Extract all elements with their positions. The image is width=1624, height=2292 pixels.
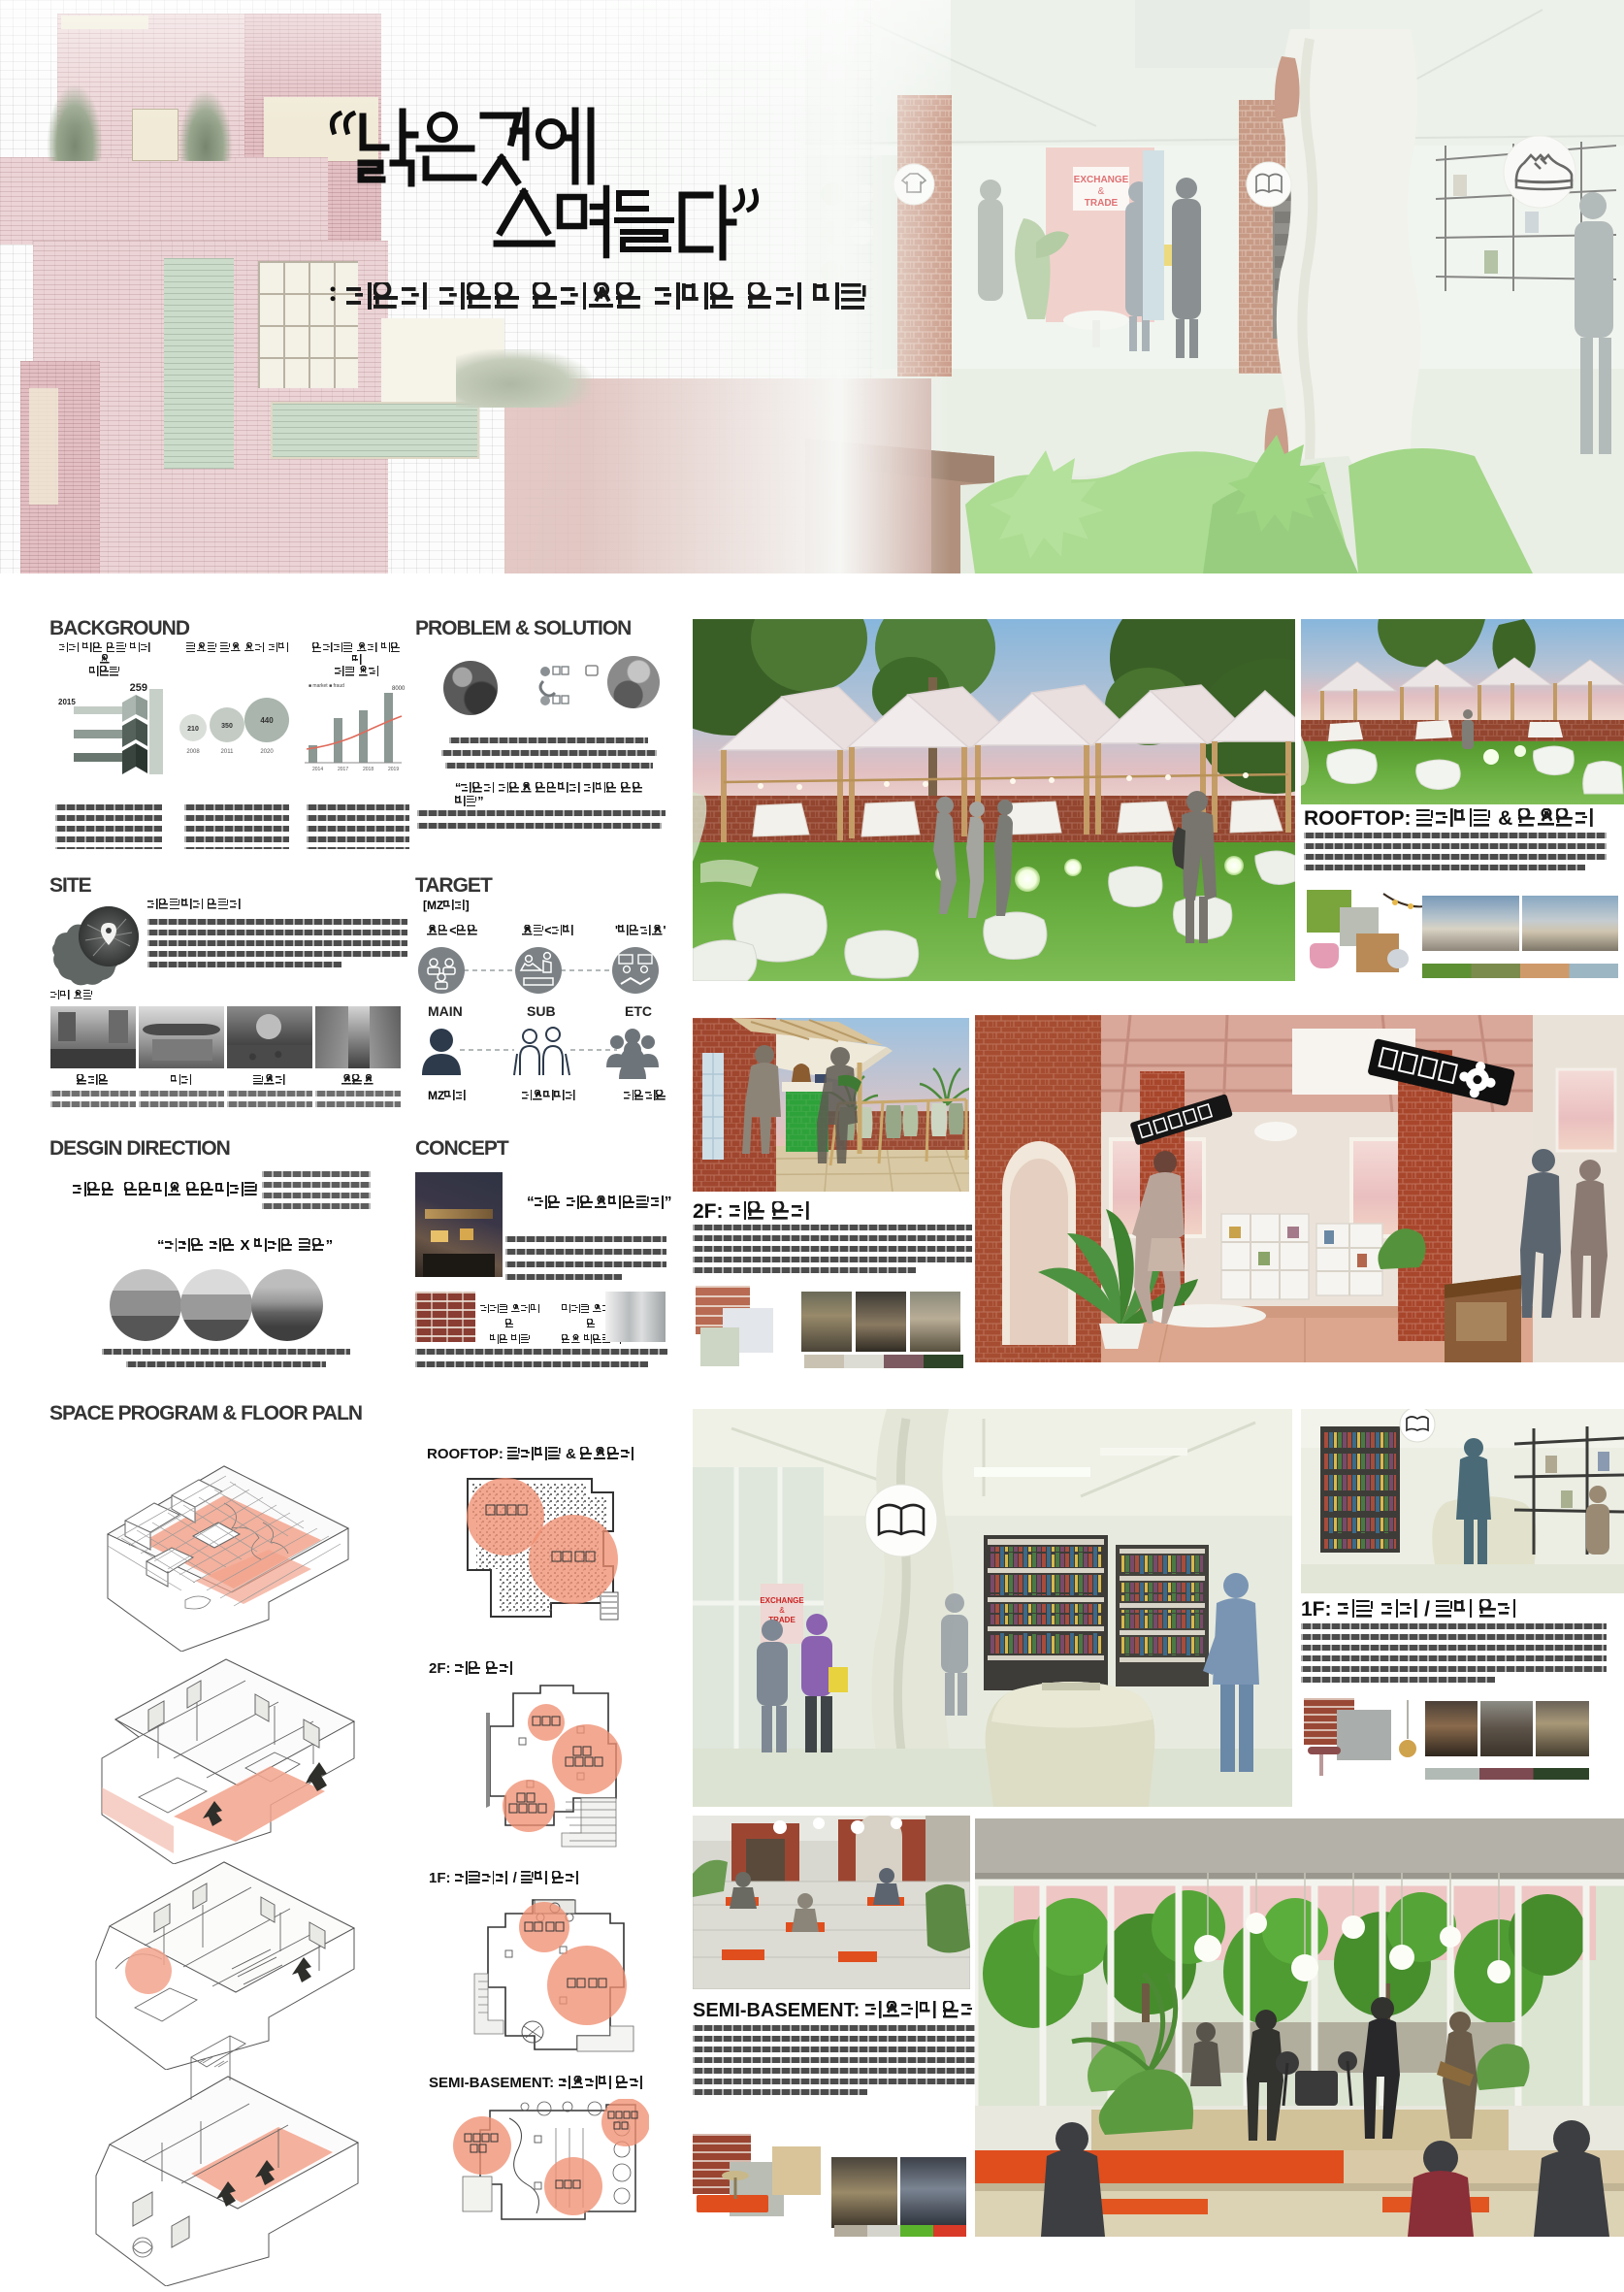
svg-text:EXCHANGE: EXCHANGE — [760, 1596, 804, 1605]
svg-text:■ market ■ fraud: ■ market ■ fraud — [309, 683, 344, 689]
svg-text:2018: 2018 — [363, 767, 374, 772]
svg-text:210: 210 — [187, 726, 199, 733]
svg-text:2017: 2017 — [338, 767, 348, 772]
svg-text:2019: 2019 — [388, 767, 399, 772]
svg-text:8000: 8000 — [392, 686, 406, 692]
svg-text:2020: 2020 — [260, 749, 274, 755]
svg-text:2012: 2012 — [58, 744, 76, 753]
svg-text:2015: 2015 — [58, 698, 76, 706]
svg-text:440: 440 — [260, 716, 274, 725]
svg-text:2014: 2014 — [312, 767, 323, 772]
svg-text:350: 350 — [221, 723, 233, 730]
svg-text:2011: 2011 — [221, 749, 235, 755]
svg-text:2013: 2013 — [58, 766, 76, 774]
svg-text:2008: 2008 — [186, 749, 200, 755]
svg-text:259: 259 — [130, 682, 147, 694]
svg-text:&: & — [779, 1606, 785, 1615]
svg-text:2014: 2014 — [58, 721, 76, 730]
